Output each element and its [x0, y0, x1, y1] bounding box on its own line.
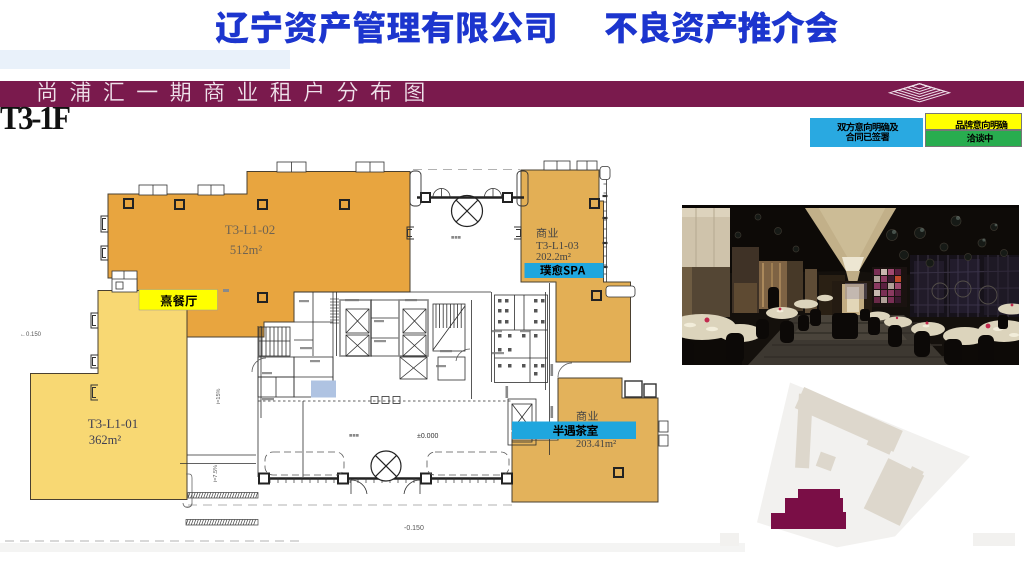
- svg-text:203.41m²: 203.41m²: [576, 439, 616, 450]
- svg-text:362m²: 362m²: [89, 433, 121, 447]
- svg-text:i=15%: i=15%: [216, 388, 222, 404]
- svg-text:202.2m²: 202.2m²: [536, 252, 571, 263]
- svg-text:512m²: 512m²: [230, 243, 262, 257]
- svg-text:T3-L1-02: T3-L1-02: [225, 222, 276, 237]
- svg-text:i=7.5%: i=7.5%: [213, 465, 219, 482]
- svg-text:T3-L1-03: T3-L1-03: [536, 240, 579, 252]
- svg-text:±0.000: ±0.000: [417, 433, 438, 440]
- svg-text:■■■: ■■■: [451, 235, 461, 241]
- svg-text:T3-L1-01: T3-L1-01: [88, 416, 139, 431]
- svg-text:←0.150: ←0.150: [20, 332, 42, 338]
- svg-text:■■■: ■■■: [349, 433, 359, 439]
- svg-text:-0.150: -0.150: [404, 525, 424, 532]
